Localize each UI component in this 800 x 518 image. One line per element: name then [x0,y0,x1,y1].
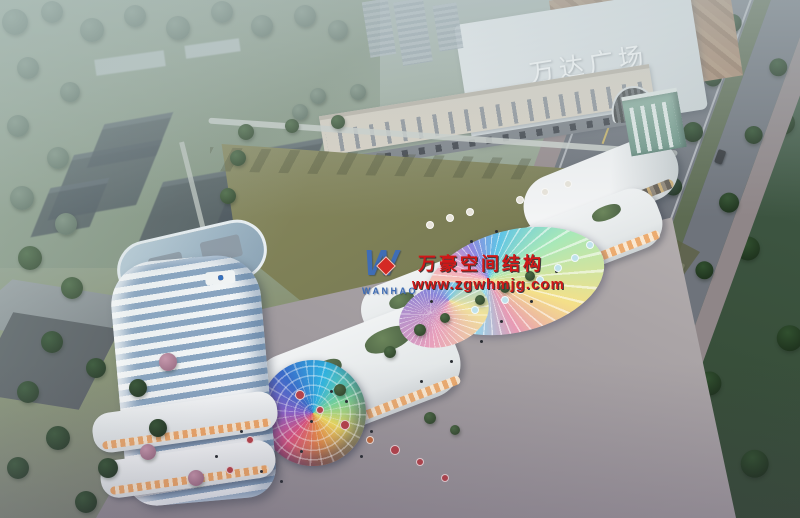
tree [773,322,800,355]
warehouse [0,312,120,409]
tree [737,446,773,482]
background-tower [393,0,433,66]
logo-blue-dot [217,275,222,280]
watermark-company-name: 万豪空间结构 [418,250,544,276]
watermark-logo-text: WANHAO [362,286,418,296]
tree [7,457,29,479]
background-tower [433,2,464,51]
roof-garden [590,201,623,225]
aerial-rendering: 万达广场 [0,0,800,518]
teal-glass-building [621,88,687,157]
tower-logo [205,270,236,286]
tree [46,426,70,450]
tree [75,491,97,513]
facade-banners [629,100,680,153]
watermark: W WANHAO 万豪空间结构 www.zgwhmjg.com [364,248,574,310]
watermark-url: www.zgwhmjg.com [412,276,565,293]
